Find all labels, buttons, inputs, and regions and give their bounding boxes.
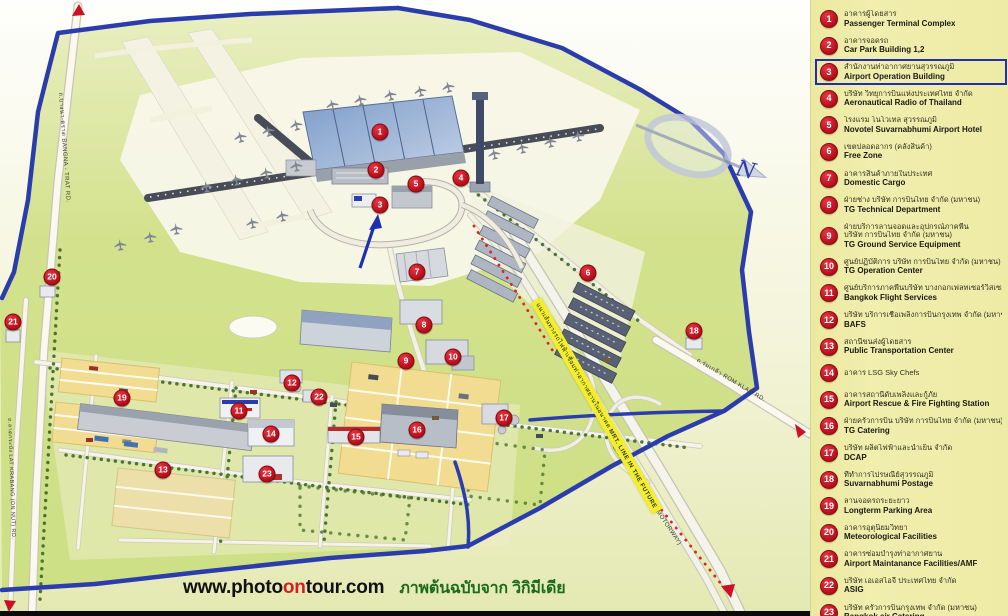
legend-thai-label: บริษัท ครัวการบินกรุงเทพ จำกัด (มหาชน): [844, 604, 977, 613]
legend-item-text: บริษัท ครัวการบินกรุงเทพ จำกัด (มหาชน)Ba…: [844, 604, 977, 616]
map-marker-4: 4: [453, 170, 470, 187]
legend-item-text: บริษัท วิทยุการบินแห่งประเทศไทย จำกัดAer…: [844, 90, 973, 108]
legend-item-6: 6เขตปลอดอากร (คลังสินค้า)Free Zone: [818, 142, 1004, 162]
legend-item-text: บริษัท บริการเชื้อเพลิงการบินกรุงเทพ จำก…: [844, 311, 1002, 329]
page: 1234567891011121314151617181920212223 ถ.…: [0, 0, 1008, 616]
legend-number-badge: 4: [820, 90, 838, 108]
legend-item-text: โรงแรม โนโวเทล สุวรรณภูมิNovotel Suvarna…: [844, 116, 982, 134]
legend-english-label: Domestic Cargo: [844, 178, 932, 188]
legend-english-label: Airport Operation Building: [844, 72, 954, 82]
legend-number-badge: 8: [820, 196, 838, 214]
legend-item-12: 12บริษัท บริการเชื้อเพลิงการบินกรุงเทพ จ…: [818, 310, 1004, 330]
legend-item-14: 14อาคาร LSG Sky Chefs: [818, 363, 1004, 383]
legend-item-21: 21อาคารซ่อมบำรุงท่าอากาศยานAirport Maint…: [818, 549, 1004, 569]
legend-item-text: ฝ่ายครัวการบิน บริษัท การบินไทย จำกัด (ม…: [844, 417, 1002, 435]
map-marker-6: 6: [580, 265, 597, 282]
legend-item-text: บริษัท ผลิตไฟฟ้าและน้ำเย็น จำกัดDCAP: [844, 444, 952, 462]
legend-item-text: อาคารสินค้าภายในประเทศDomestic Cargo: [844, 170, 932, 188]
legend-item-18: 18ที่ทำการไปรษณีย์สุวรรณภูมิSuvarnabhumi…: [818, 470, 1004, 490]
map-marker-11: 11: [231, 403, 248, 420]
legend-item-text: ฝ่ายบริการลานจอดและอุปกรณ์ภาคพื้นบริษัท …: [844, 223, 969, 250]
legend-english-label: Novotel Suvarnabhumi Airport Hotel: [844, 125, 982, 135]
legend-item-text: เขตปลอดอากร (คลังสินค้า)Free Zone: [844, 143, 932, 161]
map-marker-7: 7: [409, 264, 426, 281]
legend-english-label: ASIG: [844, 585, 957, 595]
legend-item-7: 7อาคารสินค้าภายในประเทศDomestic Cargo: [818, 169, 1004, 189]
legend-thai-label: บริษัท วิทยุการบินแห่งประเทศไทย จำกัด: [844, 90, 973, 99]
legend-item-9: 9ฝ่ายบริการลานจอดและอุปกรณ์ภาคพื้นบริษัท…: [818, 222, 1004, 251]
credit-url-accent: on: [283, 577, 306, 598]
legend-thai-label: ศูนย์ปฏิบัติการ บริษัท การบินไทย จำกัด (…: [844, 258, 1001, 267]
legend-thai-label: อาคารสถานีดับเพลิงและกู้ภัย: [844, 391, 989, 400]
legend-item-text: ฝ่ายช่าง บริษัท การบินไทย จำกัด (มหาชน)T…: [844, 196, 980, 214]
legend-number-badge: 18: [820, 471, 838, 489]
map-area: 1234567891011121314151617181920212223 ถ.…: [0, 0, 810, 616]
legend-english-label: Public Transportation Center: [844, 346, 954, 356]
legend-number-badge: 3: [820, 63, 838, 81]
legend-item-text: อาคารซ่อมบำรุงท่าอากาศยานAirport Maintan…: [844, 550, 977, 568]
legend-item-text: ศูนย์บริการภาคพื้นบริษัท บางกอกเฟลทเซอร์…: [844, 284, 1002, 302]
legend-number-badge: 13: [820, 338, 838, 356]
legend-item-22: 22บริษัท เอเอสไอจี ประเทศไทย จำกัดASIG: [818, 576, 1004, 596]
legend-item-19: 19ลานจอดรถระยะยาวLongterm Parking Area: [818, 496, 1004, 516]
maintenance-building: [6, 330, 20, 342]
map-marker-2: 2: [368, 162, 385, 179]
legend-thai-label: สำนักงานท่าอากาศยานสุวรรณภูมิ: [844, 63, 954, 72]
legend-number-badge: 20: [820, 524, 838, 542]
legend-number-badge: 5: [820, 116, 838, 134]
legend-thai-label: อาคารซ่อมบำรุงท่าอากาศยาน: [844, 550, 977, 559]
map-marker-9: 9: [398, 353, 415, 370]
legend-number-badge: 16: [820, 417, 838, 435]
legend-item-text: อาคาร LSG Sky Chefs: [844, 369, 919, 378]
legend-english-label: TG Technical Department: [844, 205, 980, 215]
legend-item-20: 20อาคารอุตุนิยมวิทยาMeteorological Facil…: [818, 523, 1004, 543]
map-marker-22: 22: [311, 389, 328, 406]
map-marker-3: 3: [372, 197, 389, 214]
legend-english-label: Suvarnabhumi Postage: [844, 479, 933, 489]
legend-thai-label: ลานจอดรถระยะยาว: [844, 497, 932, 506]
map-marker-19: 19: [114, 390, 131, 407]
legend-english-label: Passenger Terminal Complex: [844, 19, 955, 29]
legend-english-label: Airport Maintanance Facilities/AMF: [844, 559, 977, 569]
map-marker-16: 16: [409, 422, 426, 439]
legend-english-label: DCAP: [844, 453, 952, 463]
credit-line: www.photoontour.com ภาพต้นฉบับจาก วิกิมี…: [183, 576, 565, 601]
legend-item-text: อาคารสถานีดับเพลิงและกู้ภัยAirport Rescu…: [844, 391, 989, 409]
legend-number-badge: 22: [820, 577, 838, 595]
airport-map-illustration: [0, 0, 810, 616]
legend-english-label: Meteorological Facilities: [844, 532, 937, 542]
legend-english-label: Bangkok Flight Services: [844, 293, 1002, 303]
credit-url-part2: tour.com: [306, 577, 385, 598]
legend-number-badge: 2: [820, 37, 838, 55]
legend-thai-label: เขตปลอดอากร (คลังสินค้า): [844, 143, 932, 152]
map-marker-17: 17: [496, 410, 513, 427]
credit-thai-note: ภาพต้นฉบับจาก วิกิมีเดีย: [399, 580, 565, 597]
legend-english-label: Aeronautical Radio of Thailand: [844, 98, 973, 108]
legend-thai-label: อาคารจอดรถ: [844, 37, 924, 46]
legend-thai-label: สถานีขนส่งผู้โดยสาร: [844, 338, 954, 347]
map-marker-14: 14: [263, 426, 280, 443]
legend-english-label: Car Park Building 1,2: [844, 45, 924, 55]
legend-number-badge: 7: [820, 170, 838, 188]
legend-thai-label: ศูนย์บริการภาคพื้นบริษัท บางกอกเฟลทเซอร์…: [844, 284, 1002, 293]
map-marker-20: 20: [44, 269, 61, 286]
legend-number-badge: 21: [820, 550, 838, 568]
legend-item-8: 8ฝ่ายช่าง บริษัท การบินไทย จำกัด (มหาชน)…: [818, 195, 1004, 215]
legend-item-23: 23บริษัท ครัวการบินกรุงเทพ จำกัด (มหาชน)…: [818, 603, 1004, 616]
legend-number-badge: 9: [820, 227, 838, 245]
legend-english-label: TG Ground Service Equipment: [844, 240, 969, 250]
map-marker-8: 8: [416, 317, 433, 334]
legend-item-text: ลานจอดรถระยะยาวLongterm Parking Area: [844, 497, 932, 515]
legend-thai-label: บริษัท เอเอสไอจี ประเทศไทย จำกัด: [844, 577, 957, 586]
map-marker-15: 15: [348, 429, 365, 446]
post-office-building: [686, 338, 702, 349]
legend-item-13: 13สถานีขนส่งผู้โดยสารPublic Transportati…: [818, 337, 1004, 357]
legend-item-text: อาคารผู้โดยสารPassenger Terminal Complex: [844, 10, 955, 28]
legend-number-badge: 11: [820, 284, 838, 302]
map-marker-21: 21: [5, 314, 22, 331]
map-marker-13: 13: [155, 462, 172, 479]
map-marker-12: 12: [284, 375, 301, 392]
legend-number-badge: 17: [820, 444, 838, 462]
legend-thai-label: ฝ่ายช่าง บริษัท การบินไทย จำกัด (มหาชน): [844, 196, 980, 205]
legend-item-text: สถานีขนส่งผู้โดยสารPublic Transportation…: [844, 338, 954, 356]
legend-number-badge: 14: [820, 364, 838, 382]
legend-number-badge: 6: [820, 143, 838, 161]
legend-item-16: 16ฝ่ายครัวการบิน บริษัท การบินไทย จำกัด …: [818, 416, 1004, 436]
legend-english-label: Airport Rescue & Fire Fighting Station: [844, 399, 989, 409]
legend-english-label: Free Zone: [844, 151, 932, 161]
legend-item-5: 5โรงแรม โนโวเทล สุวรรณภูมิNovotel Suvarn…: [818, 115, 1004, 135]
legend-english-label: Longterm Parking Area: [844, 506, 932, 516]
legend-thai-label: ฝ่ายบริการลานจอดและอุปกรณ์ภาคพื้น: [844, 223, 969, 232]
legend-thai-label: อาคารผู้โดยสาร: [844, 10, 955, 19]
legend-panel: 1อาคารผู้โดยสารPassenger Terminal Comple…: [810, 0, 1008, 616]
legend-list: 1อาคารผู้โดยสารPassenger Terminal Comple…: [818, 9, 1004, 616]
legend-item-11: 11ศูนย์บริการภาคพื้นบริษัท บางกอกเฟลทเซอ…: [818, 283, 1004, 303]
legend-number-badge: 15: [820, 391, 838, 409]
map-marker-1: 1: [372, 124, 389, 141]
legend-thai-label: โรงแรม โนโวเทล สุวรรณภูมิ: [844, 116, 982, 125]
legend-item-3: 3สำนักงานท่าอากาศยานสุวรรณภูมิAirport Op…: [818, 62, 1004, 82]
legend-thai-label-2: บริษัท การบินไทย จำกัด (มหาชน): [844, 231, 969, 240]
legend-thai-label: อาคารอุตุนิยมวิทยา: [844, 524, 937, 533]
map-marker-10: 10: [445, 349, 462, 366]
credit-url-part1: www.photo: [183, 577, 283, 598]
legend-english-label: Bangkok air Catering: [844, 612, 977, 616]
legend-english-label: TG Catering: [844, 426, 1002, 436]
legend-item-17: 17บริษัท ผลิตไฟฟ้าและน้ำเย็น จำกัดDCAP: [818, 443, 1004, 463]
legend-item-1: 1อาคารผู้โดยสารPassenger Terminal Comple…: [818, 9, 1004, 29]
legend-number-badge: 10: [820, 258, 838, 276]
legend-item-text: สำนักงานท่าอากาศยานสุวรรณภูมิAirport Ope…: [844, 63, 954, 81]
legend-thai-label: อาคาร LSG Sky Chefs: [844, 369, 919, 378]
legend-thai-label: ที่ทำการไปรษณีย์สุวรรณภูมิ: [844, 471, 933, 480]
legend-item-4: 4บริษัท วิทยุการบินแห่งประเทศไทย จำกัดAe…: [818, 89, 1004, 109]
map-marker-5: 5: [408, 176, 425, 193]
legend-item-text: บริษัท เอเอสไอจี ประเทศไทย จำกัดASIG: [844, 577, 957, 595]
legend-number-badge: 1: [820, 10, 838, 28]
legend-item-text: ที่ทำการไปรษณีย์สุวรรณภูมิSuvarnabhumi P…: [844, 471, 933, 489]
legend-item-15: 15อาคารสถานีดับเพลิงและกู้ภัยAirport Res…: [818, 390, 1004, 410]
legend-item-text: อาคารอุตุนิยมวิทยาMeteorological Facilit…: [844, 524, 937, 542]
legend-item-10: 10ศูนย์ปฏิบัติการ บริษัท การบินไทย จำกัด…: [818, 257, 1004, 277]
legend-item-text: อาคารจอดรถCar Park Building 1,2: [844, 37, 924, 55]
legend-thai-label: ฝ่ายครัวการบิน บริษัท การบินไทย จำกัด (ม…: [844, 417, 1002, 426]
legend-number-badge: 12: [820, 311, 838, 329]
legend-english-label: BAFS: [844, 320, 1002, 330]
legend-thai-label: บริษัท บริการเชื้อเพลิงการบินกรุงเทพ จำก…: [844, 311, 1002, 320]
legend-number-badge: 19: [820, 497, 838, 515]
reservoir-pond: [229, 316, 277, 338]
legend-thai-label: อาคารสินค้าภายในประเทศ: [844, 170, 932, 179]
map-marker-18: 18: [686, 323, 703, 340]
legend-thai-label: บริษัท ผลิตไฟฟ้าและน้ำเย็น จำกัด: [844, 444, 952, 453]
legend-item-text: ศูนย์ปฏิบัติการ บริษัท การบินไทย จำกัด (…: [844, 258, 1001, 276]
legend-item-2: 2อาคารจอดรถCar Park Building 1,2: [818, 36, 1004, 56]
legend-number-badge: 23: [820, 604, 838, 616]
meteorological-building: [40, 286, 55, 297]
map-marker-23: 23: [259, 466, 276, 483]
bottom-black-bar: [0, 611, 810, 616]
legend-english-label: TG Operation Center: [844, 266, 1001, 276]
